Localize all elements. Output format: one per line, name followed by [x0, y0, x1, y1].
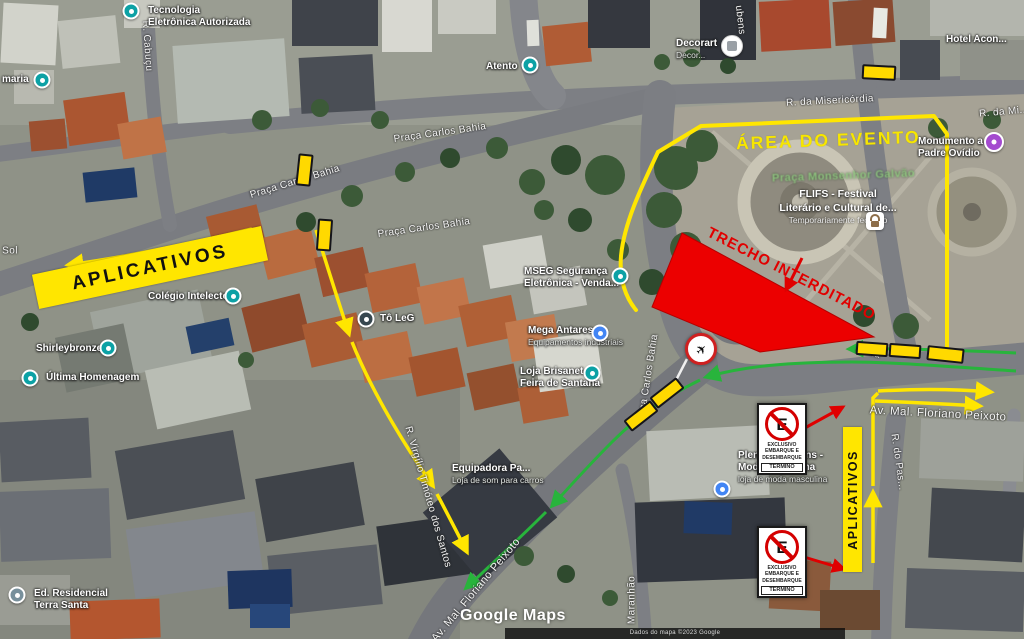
to-leg-pin[interactable]	[358, 311, 375, 328]
ultima-homenagem-pin[interactable]	[22, 370, 39, 387]
atento-label: Atento	[486, 61, 518, 73]
atento[interactable]: Atento	[486, 61, 518, 73]
tecnologia-eletronica[interactable]: TecnologiaEletrônica Autorizada	[148, 5, 250, 29]
flifs-subtitle: Literário e Cultural de...	[758, 202, 918, 216]
mega-antares-label: Equipamentos industriais	[528, 337, 623, 347]
flifs-poi[interactable]: FLIFS - Festival Literário e Cultural de…	[758, 188, 918, 225]
road-barrier-6	[856, 341, 889, 357]
sign-footer: TÉRMINO	[761, 463, 803, 472]
tecnologia-eletronica-label: Eletrônica Autorizada	[148, 17, 250, 29]
loja-brisanet-pin[interactable]	[584, 365, 601, 382]
ed-residencial-terra-santa-pin[interactable]	[9, 587, 26, 604]
road-barrier-7	[889, 343, 922, 359]
map-attribution: Dados do mapa ©2023 Google	[505, 628, 845, 639]
yellow-route-virgilio	[316, 230, 467, 552]
tecnologia-eletronica-label: Tecnologia	[148, 5, 250, 17]
farmacia-partial-pin[interactable]	[34, 72, 51, 89]
watermark-text: Google Maps	[460, 607, 566, 624]
ed-residencial-terra-santa-label: Terra Santa	[34, 600, 108, 612]
shirleybronze[interactable]: Shirleybronze	[36, 343, 102, 355]
traffic-sign-icon: ✈	[685, 333, 717, 365]
decorart-label: Decorart	[676, 38, 717, 50]
colegio-intelecto-label: Colégio Intelecto	[148, 291, 229, 303]
equipadora-label: Loja de som para carros	[452, 475, 544, 485]
atento-pin[interactable]	[522, 57, 539, 74]
mseg[interactable]: MSEG SegurançaEletrônica - Venda...	[524, 266, 619, 290]
mseg-label: MSEG Segurança	[524, 266, 619, 278]
street-maranhao: Maranhão	[627, 576, 638, 624]
hotel-acon[interactable]: Hotel Acon...	[946, 34, 1007, 46]
flifs-status: Temporariamente fechado	[758, 215, 918, 225]
map-screenshot: TecnologiaEletrônica AutorizadamariaAten…	[0, 0, 1024, 639]
monumento-padre-ovidio-label: Padre Ovídio	[918, 148, 983, 160]
mega-antares[interactable]: Mega AntaresEquipamentos industriais	[528, 325, 623, 347]
sign-text: DESEMBARQUE	[760, 578, 804, 584]
ultima-homenagem-label: Última Homenagem	[46, 372, 139, 384]
no-parking-icon: E	[765, 407, 799, 441]
decorart-pin[interactable]	[721, 35, 743, 57]
farmacia-partial-label: maria	[2, 74, 29, 86]
farmacia-partial[interactable]: maria	[2, 74, 29, 86]
to-leg[interactable]: Tô LeG	[380, 313, 414, 325]
ed-residencial-terra-santa-label: Ed. Residencial	[34, 588, 108, 600]
to-leg-label: Tô LeG	[380, 313, 414, 325]
tecnologia-eletronica-pin[interactable]	[123, 3, 140, 20]
temporarily-closed-icon	[866, 212, 884, 230]
no-parking-sign-1: E EXCLUSIVO EMBARQUE E DESEMBARQUE TÉRMI…	[757, 403, 807, 475]
shirleybronze-label: Shirleybronze	[36, 343, 102, 355]
sign-text: EMBARQUE E	[760, 448, 804, 454]
decorart[interactable]: DecorartDecor...	[676, 38, 717, 60]
sign-footer: TÉRMINO	[761, 586, 803, 595]
plenytude-jeans-label: loja de moda masculina	[738, 474, 827, 484]
flifs-title: FLIFS - Festival	[758, 188, 918, 202]
sign-text: DESEMBARQUE	[760, 455, 804, 461]
mega-antares-label: Mega Antares	[528, 325, 623, 337]
equipadora[interactable]: Equipadora Pa...Loja de som para carros	[452, 463, 544, 485]
monumento-padre-ovidio-label: Monumento a	[918, 136, 983, 148]
plenytude-jeans-pin[interactable]	[714, 481, 731, 498]
road-barrier-2	[316, 219, 333, 252]
ultima-homenagem[interactable]: Última Homenagem	[46, 372, 139, 384]
colegio-intelecto-pin[interactable]	[225, 288, 242, 305]
apps-banner-right-text: APLICATIVOS	[846, 450, 860, 550]
decorart-label: Decor...	[676, 50, 717, 60]
sign-text: EMBARQUE E	[760, 571, 804, 577]
monumento-padre-ovidio[interactable]: Monumento aPadre Ovídio	[918, 136, 983, 160]
street-sol: Sol	[2, 246, 18, 257]
mega-antares-pin[interactable]	[592, 325, 609, 342]
road-barrier-3	[862, 64, 897, 81]
google-maps-watermark: Google Maps	[460, 607, 566, 625]
shirleybronze-pin[interactable]	[100, 340, 117, 357]
equipadora-label: Equipadora Pa...	[452, 463, 544, 475]
ed-residencial-terra-santa[interactable]: Ed. ResidencialTerra Santa	[34, 588, 108, 612]
no-parking-icon: E	[765, 530, 799, 564]
colegio-intelecto[interactable]: Colégio Intelecto	[148, 291, 229, 303]
mseg-pin[interactable]	[612, 268, 629, 285]
no-parking-sign-2: E EXCLUSIVO EMBARQUE E DESEMBARQUE TÉRMI…	[757, 526, 807, 598]
apps-route-banner-right: APLICATIVOS	[843, 427, 862, 572]
hotel-acon-label: Hotel Acon...	[946, 34, 1007, 46]
mseg-label: Eletrônica - Venda...	[524, 278, 619, 290]
monumento-padre-ovidio-pin[interactable]	[984, 132, 1004, 152]
